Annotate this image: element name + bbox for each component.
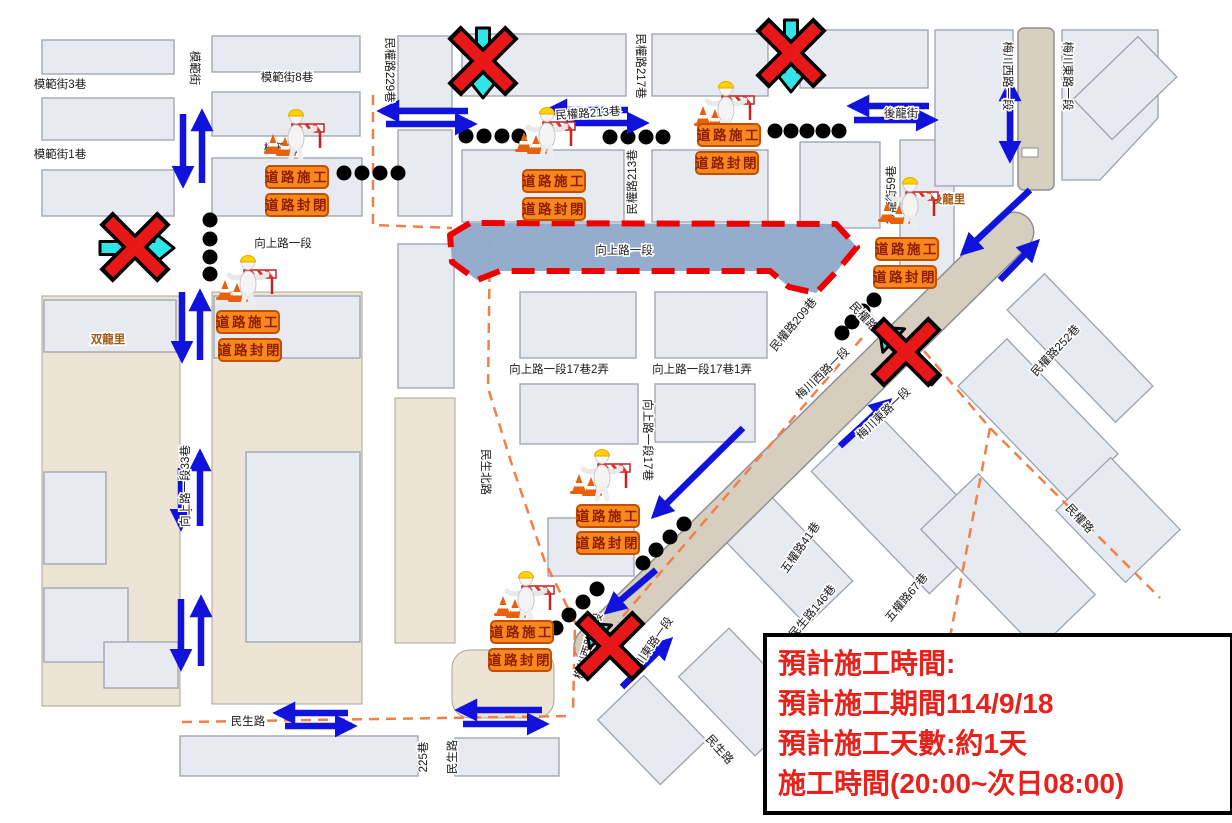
closure-dot (495, 129, 510, 144)
closure-dot (576, 595, 591, 610)
road-sign-label: 道路施工 (265, 169, 329, 185)
closure-dot (800, 124, 815, 139)
closure-dot (391, 166, 406, 181)
street-label: 向上路一段17巷2弄 (509, 362, 609, 376)
street-label: 民生路 (231, 714, 266, 728)
closure-dot (784, 124, 799, 139)
info-line-period: 預計施工期間114/9/18 (778, 685, 1219, 723)
street-label: 民權路213巷 (555, 104, 622, 123)
road-sign-label: 道路封閉 (873, 269, 937, 285)
road-sign-label: 道路封閉 (522, 201, 586, 217)
closure-dot (373, 166, 388, 181)
road-sign-label: 道路封閉 (218, 342, 282, 358)
road-sign-label: 道路施工 (697, 127, 761, 143)
info-line-days: 預計施工天數:約1天 (778, 725, 1219, 763)
closure-dot (562, 608, 577, 623)
street-label: 民權路209巷 (767, 295, 820, 354)
street-label: 向上路一段17巷1弄 (652, 362, 752, 376)
construction-notice-map: 模範街3巷模範街模範街8巷模範街模範街1巷民權路229巷民權路217巷民權路21… (0, 0, 1232, 823)
closure-dot (768, 124, 783, 139)
closed-road-polygon (450, 223, 857, 293)
street-label: 五權路67巷 (882, 570, 931, 624)
closure-dot (832, 124, 847, 139)
street-label: 民生路 (703, 732, 737, 767)
closure-dot (656, 130, 671, 145)
street-label: 向上路一段33巷 (178, 445, 192, 527)
closure-dot (477, 129, 492, 144)
road-sign-label: 道路施工 (522, 173, 586, 189)
district-label: 双龍里 (90, 332, 126, 346)
street-label: 向上路一段 (595, 243, 653, 257)
closure-dot (203, 213, 218, 228)
street-label: 模範街3巷 (34, 77, 87, 91)
closure-dot (867, 293, 882, 308)
street-label: 梅川西路一段 (1001, 42, 1015, 111)
street-label: 民生路 (445, 739, 459, 774)
closure-dot (649, 543, 664, 558)
construction-worker-icon (494, 572, 554, 622)
street-label: 民生北路 (479, 449, 493, 495)
road-closure-area (450, 223, 857, 293)
street-label: 後龍街 (884, 106, 919, 120)
road-sign-label: 道路封閉 (695, 155, 759, 171)
closure-dot (203, 250, 218, 265)
closure-dot (639, 130, 654, 145)
closure-dot (603, 130, 618, 145)
construction-worker-icon (570, 450, 630, 500)
street-label: 民權路229巷 (383, 37, 397, 103)
closure-dot (590, 582, 605, 597)
road-sign-label: 道路封閉 (488, 652, 552, 668)
street-label: 民權路213巷 (625, 149, 639, 215)
road-sign-label: 道路封閉 (265, 197, 329, 213)
street-label: 向上路一段 (254, 236, 312, 250)
closure-dot (203, 232, 218, 247)
road-sign-label: 道路施工 (490, 624, 554, 640)
closure-dot (636, 556, 651, 571)
closure-dot (355, 166, 370, 181)
street-label: 模範街 (188, 51, 202, 86)
road-sign-label: 道路施工 (576, 508, 640, 524)
street-label: 225巷 (417, 741, 430, 772)
closure-dot (621, 130, 636, 145)
road-sign-label: 道路封閉 (576, 535, 640, 551)
closure-dot (459, 129, 474, 144)
info-line-title: 預計施工時間: (778, 645, 1219, 683)
street-label: 梅川東路一段 (1061, 42, 1075, 111)
construction-info-box: 預計施工時間: 預計施工期間114/9/18 預計施工天數:約1天 施工時間(2… (763, 633, 1232, 815)
street-label: 民權路217巷 (634, 33, 648, 99)
closure-dot (663, 530, 678, 545)
street-label: 模範街1巷 (34, 147, 87, 161)
info-line-hours: 施工時間(20:00~次日08:00) (778, 765, 1219, 803)
closure-dot (677, 517, 692, 532)
closure-dot (816, 124, 831, 139)
road-sign-label: 道路施工 (216, 314, 280, 330)
closure-dot (835, 326, 850, 341)
street-label: 模範街8巷 (261, 70, 314, 84)
closure-dot (337, 166, 352, 181)
closure-dot (203, 267, 218, 282)
street-label: 向上路一段17巷 (641, 399, 655, 481)
road-sign-label: 道路施工 (875, 241, 939, 257)
